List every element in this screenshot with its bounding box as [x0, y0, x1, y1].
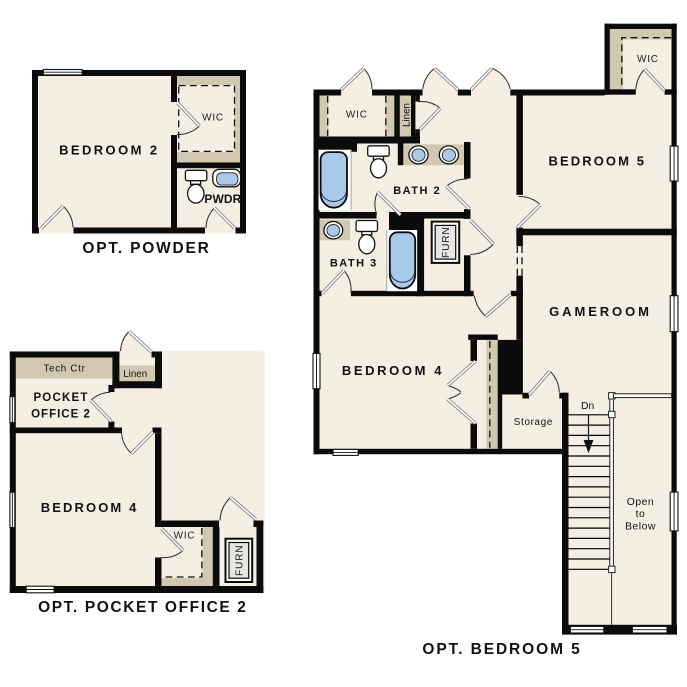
svg-text:Linen: Linen: [123, 369, 147, 380]
svg-text:BEDROOM 4: BEDROOM 4: [41, 500, 139, 515]
svg-text:WIC: WIC: [637, 54, 659, 65]
svg-text:BATH 3: BATH 3: [330, 258, 378, 270]
svg-text:OPT. BEDROOM 5: OPT. BEDROOM 5: [422, 641, 581, 658]
svg-text:Below: Below: [625, 521, 656, 532]
svg-text:BEDROOM 4: BEDROOM 4: [342, 363, 444, 378]
svg-text:to: to: [636, 509, 646, 520]
svg-text:Dn: Dn: [581, 401, 595, 412]
svg-text:PWDR: PWDR: [204, 192, 241, 206]
svg-text:OFFICE 2: OFFICE 2: [31, 408, 91, 420]
svg-text:Open: Open: [627, 497, 654, 508]
svg-text:OPT. POCKET OFFICE 2: OPT. POCKET OFFICE 2: [38, 599, 247, 616]
svg-text:BEDROOM 2: BEDROOM 2: [59, 143, 159, 158]
svg-text:Linen: Linen: [401, 103, 412, 127]
svg-text:FURN: FURN: [441, 226, 452, 258]
svg-text:WIC: WIC: [174, 531, 196, 542]
svg-text:Tech Ctr: Tech Ctr: [43, 364, 85, 375]
svg-text:Storage: Storage: [514, 417, 553, 428]
svg-text:BATH 2: BATH 2: [393, 185, 441, 197]
svg-text:GAMEROOM: GAMEROOM: [549, 304, 652, 319]
svg-text:WIC: WIC: [346, 110, 368, 121]
svg-text:FURN: FURN: [234, 545, 245, 577]
svg-text:BEDROOM 5: BEDROOM 5: [548, 154, 646, 169]
svg-text:WIC: WIC: [202, 113, 224, 124]
svg-text:POCKET: POCKET: [33, 392, 88, 404]
svg-text:OPT. POWDER: OPT. POWDER: [82, 240, 210, 257]
